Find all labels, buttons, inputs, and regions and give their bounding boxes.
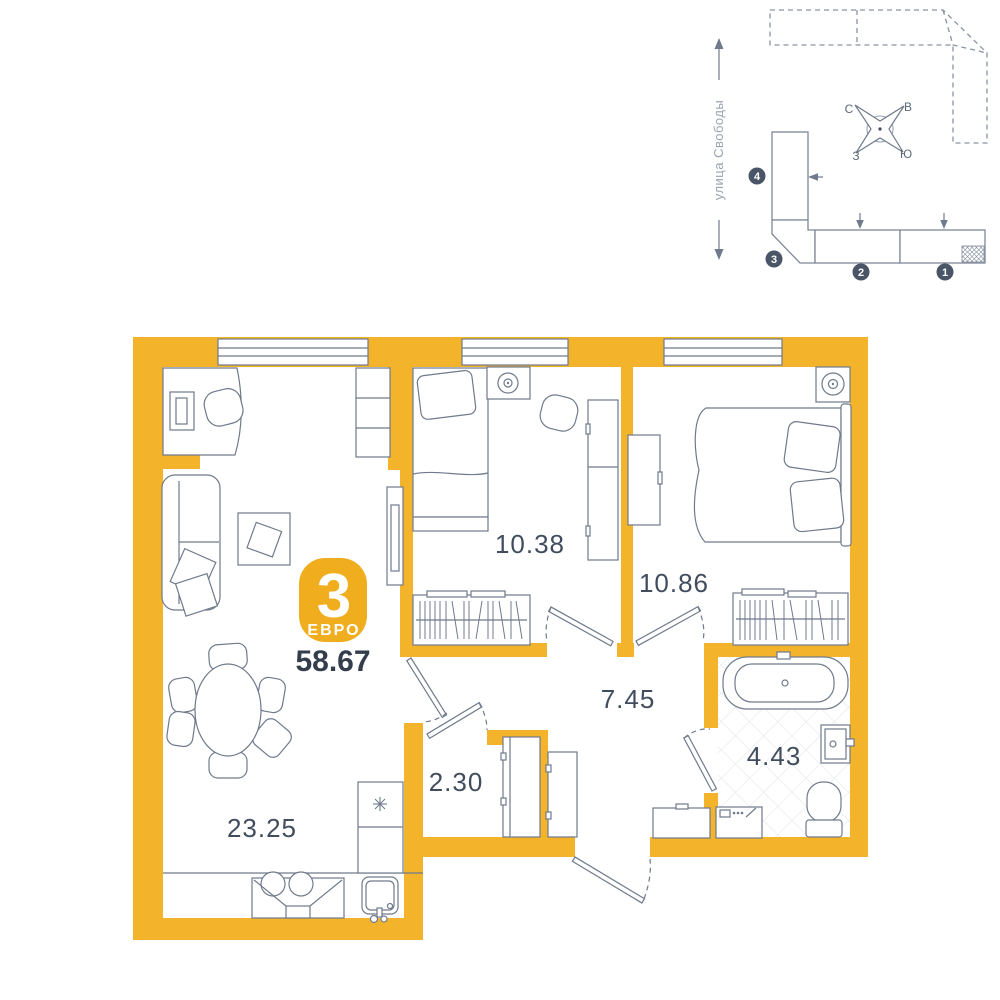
building-section-4 bbox=[772, 132, 808, 220]
building-sections bbox=[772, 132, 985, 263]
compass-rose: С В З Ю bbox=[845, 100, 912, 163]
badge-rooms-count: 3 bbox=[317, 562, 351, 631]
area-bathroom: 4.43 bbox=[747, 741, 802, 771]
street-direction: улица Свободы bbox=[711, 38, 726, 260]
apartment-position-hatch bbox=[962, 246, 984, 262]
compass-east: В bbox=[904, 100, 912, 114]
double-bed bbox=[694, 404, 851, 546]
section-badge-1-label: 1 bbox=[942, 267, 948, 279]
door-bedroom-small bbox=[546, 607, 613, 646]
pillow bbox=[417, 370, 477, 420]
wardrobe bbox=[733, 589, 848, 645]
section-badge-2-label: 2 bbox=[858, 267, 864, 279]
area-bedroom-large: 10.86 bbox=[639, 568, 709, 598]
compass-west: З bbox=[852, 149, 859, 163]
dining-chair bbox=[167, 676, 199, 714]
window bbox=[462, 339, 568, 365]
door-entrance bbox=[572, 857, 650, 903]
hall-wardrobe bbox=[546, 752, 577, 837]
pillow bbox=[783, 421, 841, 474]
monitor-inner bbox=[176, 398, 187, 424]
compass-south: Ю bbox=[900, 147, 912, 161]
window bbox=[218, 339, 368, 365]
ceiling-light-icon bbox=[816, 367, 850, 402]
bed-footboard bbox=[413, 517, 488, 531]
dining-table bbox=[195, 664, 261, 756]
floorplan-svg: улица Свободы С В З Ю bbox=[0, 0, 1000, 1000]
toilet bbox=[806, 782, 842, 837]
kitchen bbox=[163, 782, 423, 923]
arrow-down-icon bbox=[856, 220, 864, 229]
dining-set bbox=[166, 643, 295, 778]
total-area: 58.67 bbox=[295, 645, 370, 678]
location-minimap: улица Свободы С В З Ю bbox=[711, 10, 987, 281]
floorplan-page: улица Свободы С В З Ю bbox=[0, 0, 1000, 1000]
pillow bbox=[790, 477, 845, 532]
dresser bbox=[628, 435, 662, 525]
kitchen-sink bbox=[362, 877, 398, 923]
area-bedroom-small: 10.38 bbox=[495, 529, 565, 559]
desk bbox=[586, 400, 618, 560]
stove bbox=[252, 872, 344, 918]
cabinet bbox=[653, 808, 710, 838]
compass-north: С bbox=[845, 102, 854, 116]
area-living: 23.25 bbox=[227, 813, 297, 843]
wardrobe bbox=[413, 591, 530, 645]
chair bbox=[537, 392, 580, 434]
apartment-plan: 23.25 10.38 10.86 7.45 2.30 4.43 3 ЕВРО … bbox=[133, 337, 868, 940]
bathtub bbox=[723, 652, 848, 709]
windows bbox=[218, 339, 782, 365]
window bbox=[664, 339, 782, 365]
closet-wardrobe bbox=[501, 737, 540, 837]
area-hallway: 7.45 bbox=[601, 684, 656, 714]
bedroom-large-furniture bbox=[628, 367, 851, 645]
ceiling-light-icon bbox=[487, 367, 530, 399]
arrow-down-icon bbox=[940, 220, 948, 229]
sofa bbox=[162, 475, 220, 616]
arrow-down-icon bbox=[715, 249, 724, 260]
building-section-2 bbox=[815, 230, 900, 263]
area-closet: 2.30 bbox=[429, 767, 484, 797]
street-name: улица Свободы bbox=[711, 100, 726, 201]
bedroom-small-furniture bbox=[413, 367, 618, 645]
vent-icon bbox=[373, 797, 387, 811]
section-badge-4-label: 4 bbox=[754, 171, 761, 183]
washing-machine bbox=[716, 807, 762, 838]
bathroom-sink bbox=[821, 725, 854, 763]
tv bbox=[391, 505, 399, 571]
shelving-unit bbox=[356, 368, 390, 457]
dining-chair bbox=[166, 710, 196, 747]
arrow-left-icon bbox=[808, 173, 818, 181]
hallway-furniture bbox=[501, 737, 710, 838]
coffee-table bbox=[238, 513, 290, 565]
section-badge-3-label: 3 bbox=[771, 254, 777, 266]
apartment-type-badge: 3 ЕВРО 58.67 bbox=[295, 558, 370, 678]
door-living-hall bbox=[407, 658, 447, 722]
door-bathroom bbox=[684, 729, 717, 791]
arrow-up-icon bbox=[715, 38, 724, 49]
badge-type-label: ЕВРО bbox=[307, 622, 360, 639]
door-bedroom-large bbox=[636, 607, 704, 646]
